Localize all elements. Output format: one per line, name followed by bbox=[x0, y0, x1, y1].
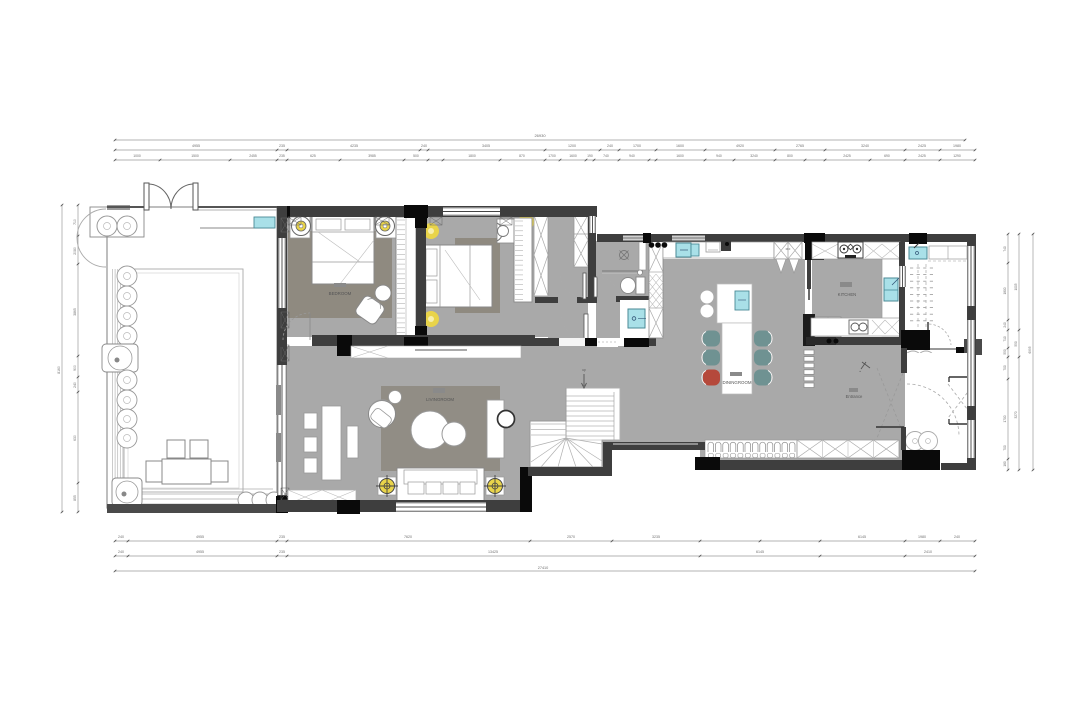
svg-text:2765: 2765 bbox=[796, 144, 804, 148]
svg-text:26930: 26930 bbox=[534, 133, 546, 138]
svg-text:1005: 1005 bbox=[1014, 283, 1018, 290]
svg-text:940: 940 bbox=[716, 154, 722, 158]
svg-text:1700: 1700 bbox=[633, 144, 641, 148]
svg-text:550: 550 bbox=[1014, 341, 1018, 347]
svg-text:1600: 1600 bbox=[676, 144, 684, 148]
svg-text:870: 870 bbox=[519, 154, 525, 158]
svg-text:240: 240 bbox=[73, 382, 77, 388]
svg-text:4955: 4955 bbox=[196, 550, 204, 554]
svg-text:180: 180 bbox=[1003, 461, 1007, 467]
svg-text:3235: 3235 bbox=[652, 535, 660, 539]
svg-text:235: 235 bbox=[279, 154, 285, 158]
svg-text:6145: 6145 bbox=[756, 550, 764, 554]
svg-text:240: 240 bbox=[118, 550, 124, 554]
svg-text:1290: 1290 bbox=[953, 154, 961, 158]
svg-text:240: 240 bbox=[118, 535, 124, 539]
svg-text:710: 710 bbox=[1003, 336, 1007, 342]
svg-text:625: 625 bbox=[310, 154, 316, 158]
svg-text:2570: 2570 bbox=[567, 535, 575, 539]
svg-text:4920: 4920 bbox=[736, 144, 744, 148]
svg-text:Entrance: Entrance bbox=[846, 394, 863, 399]
svg-text:4955: 4955 bbox=[192, 144, 200, 148]
svg-text:8160: 8160 bbox=[57, 366, 61, 374]
svg-text:1800: 1800 bbox=[1003, 287, 1007, 294]
svg-text:1600: 1600 bbox=[676, 154, 684, 158]
svg-text:235: 235 bbox=[279, 550, 285, 554]
svg-text:740: 740 bbox=[1003, 246, 1007, 252]
svg-text:3865: 3865 bbox=[73, 308, 77, 316]
svg-text:4235: 4235 bbox=[350, 144, 358, 148]
svg-text:6145: 6145 bbox=[858, 535, 866, 539]
svg-text:LIVINGROOM: LIVINGROOM bbox=[426, 397, 454, 402]
svg-text:855: 855 bbox=[73, 495, 77, 501]
svg-text:630: 630 bbox=[73, 435, 77, 441]
svg-text:up: up bbox=[582, 368, 586, 372]
svg-text:710: 710 bbox=[73, 219, 77, 225]
svg-text:1700: 1700 bbox=[548, 154, 556, 158]
svg-text:900: 900 bbox=[73, 365, 77, 371]
svg-text:700: 700 bbox=[1003, 365, 1007, 371]
svg-text:DININGROOM: DININGROOM bbox=[722, 380, 751, 385]
svg-text:3240: 3240 bbox=[750, 154, 758, 158]
svg-text:6995: 6995 bbox=[1028, 346, 1032, 353]
svg-text:3985: 3985 bbox=[368, 154, 376, 158]
svg-text:1800: 1800 bbox=[468, 154, 476, 158]
svg-text:1200: 1200 bbox=[568, 144, 576, 148]
svg-text:800: 800 bbox=[787, 154, 793, 158]
svg-text:2425: 2425 bbox=[918, 144, 926, 148]
svg-text:3270: 3270 bbox=[1014, 411, 1018, 418]
svg-text:240: 240 bbox=[1003, 322, 1007, 328]
svg-text:BEDROOM: BEDROOM bbox=[329, 291, 352, 296]
svg-text:3405: 3405 bbox=[482, 144, 490, 148]
svg-text:940: 940 bbox=[629, 154, 635, 158]
svg-text:R.F: R.F bbox=[786, 247, 791, 251]
svg-text:2080: 2080 bbox=[73, 247, 77, 255]
svg-text:235: 235 bbox=[279, 535, 285, 539]
svg-text:2425: 2425 bbox=[918, 154, 926, 158]
svg-text:2410: 2410 bbox=[924, 550, 932, 554]
svg-text:1600: 1600 bbox=[569, 154, 577, 158]
svg-text:3240: 3240 bbox=[861, 144, 869, 148]
svg-text:1980: 1980 bbox=[918, 535, 926, 539]
svg-text:700: 700 bbox=[1003, 445, 1007, 451]
svg-text:27410: 27410 bbox=[538, 566, 549, 570]
svg-text:235: 235 bbox=[279, 144, 285, 148]
svg-text:2455: 2455 bbox=[249, 154, 257, 158]
svg-text:1700: 1700 bbox=[1003, 415, 1007, 422]
svg-text:1500: 1500 bbox=[191, 154, 199, 158]
svg-text:740: 740 bbox=[603, 154, 609, 158]
svg-text:240: 240 bbox=[607, 144, 613, 148]
svg-text:550: 550 bbox=[1003, 349, 1007, 355]
svg-text:4955: 4955 bbox=[196, 535, 204, 539]
svg-text:2425: 2425 bbox=[843, 154, 851, 158]
svg-text:690: 690 bbox=[884, 154, 890, 158]
svg-text:1980: 1980 bbox=[953, 144, 961, 148]
svg-text:7620: 7620 bbox=[404, 535, 412, 539]
svg-text:1000: 1000 bbox=[133, 154, 141, 158]
svg-text:190: 190 bbox=[587, 154, 593, 158]
svg-text:KITCHEN: KITCHEN bbox=[838, 292, 856, 297]
svg-text:13425: 13425 bbox=[488, 550, 498, 554]
svg-text:500: 500 bbox=[413, 154, 419, 158]
svg-text:240: 240 bbox=[421, 144, 427, 148]
svg-text:240: 240 bbox=[954, 535, 960, 539]
